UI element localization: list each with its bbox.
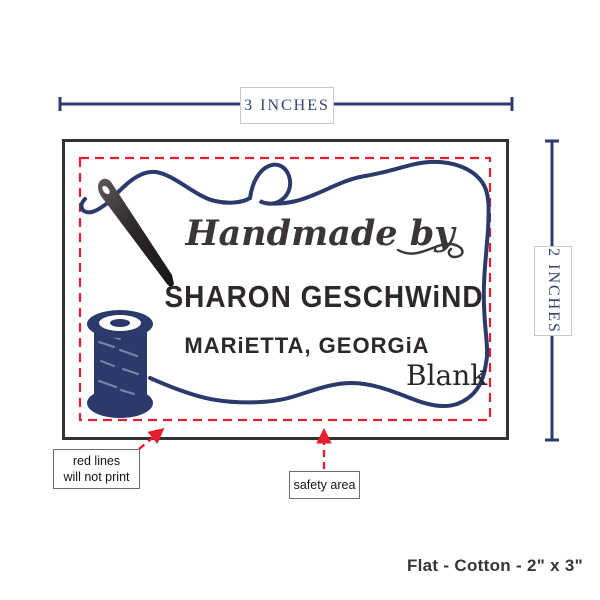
location-text: MARiETTA, GEORGiA <box>127 333 487 359</box>
red-lines-note-line2: will not print <box>64 469 130 485</box>
safety-area-note: safety area <box>289 471 360 499</box>
label-proof-page: 3 INCHES 2 INCHES Handmade by SHARON GES… <box>0 0 600 600</box>
personalized-name-text: SHARON GESCHWiND <box>144 280 504 315</box>
safety-area-note-text: safety area <box>294 477 356 493</box>
blank-placeholder-text: Blank <box>406 359 496 392</box>
width-dimension-label: 3 INCHES <box>240 87 334 124</box>
height-dimension-label: 2 INCHES <box>534 246 572 336</box>
red-lines-note: red lines will not print <box>53 449 140 489</box>
red-lines-note-line1: red lines <box>73 453 120 469</box>
product-spec-text: Flat - Cotton - 2" x 3" <box>407 556 583 576</box>
handmade-by-text: Handmade by <box>155 213 485 254</box>
height-dimension-text: 2 INCHES <box>544 248 562 334</box>
width-dimension-text: 3 INCHES <box>244 97 330 115</box>
